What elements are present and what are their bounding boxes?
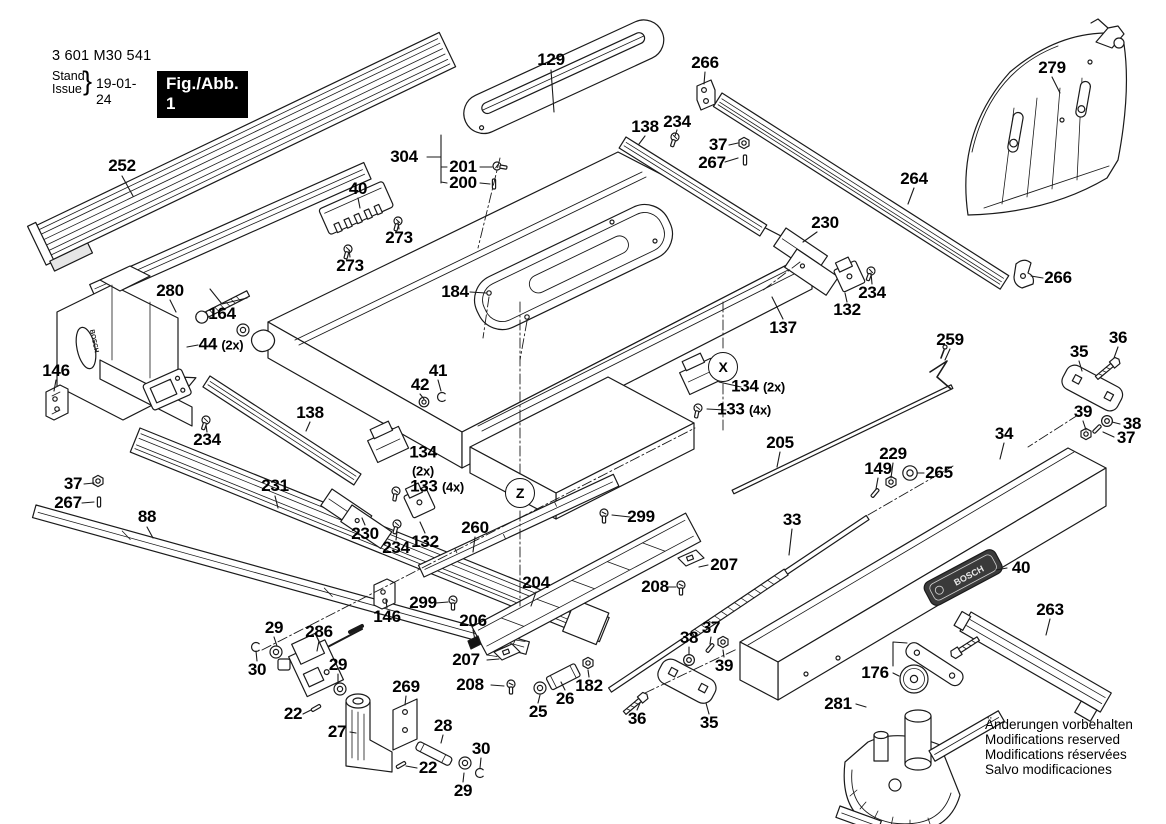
part-callout-27: 27 [328,723,346,741]
part-callout-132: 132 [411,533,438,551]
issue-date: 19-01-24 [96,75,151,107]
part-callout-42: 42 [411,376,429,394]
model-number: 3 601 M30 541 [52,48,151,64]
title-block: 3 601 M30 541 Stand Issue } 19-01-24 Fig… [52,48,151,64]
part-callout-37: 37 [1117,429,1135,447]
part-callout-88: 88 [138,508,156,526]
part-callout-208: 208 [456,676,483,694]
part-callout-22: 22 [284,705,302,723]
part-callout-267: 267 [54,494,81,512]
part-callout-138: 138 [631,118,658,136]
notice-line: Modifications reserved [985,732,1133,747]
part-callout-Z: Z [505,478,535,508]
part-callout-44-2x: 44 (2x) [199,336,244,355]
part-callout-299: 299 [627,508,654,526]
notice-line: Modifications réservées [985,747,1133,762]
part-callout-129: 129 [537,51,564,69]
part-callout-29: 29 [329,656,347,674]
part-callout-207: 207 [452,651,479,669]
part-callout-263: 263 [1036,601,1063,619]
part-callout-260: 260 [461,519,488,537]
parts-diagram-page: BOSCH [0,0,1166,824]
part-callout-204: 204 [522,574,549,592]
part-callout-266: 266 [691,54,718,72]
part-callout-133-4x: 133 (4x) [717,401,771,420]
part-callout-40: 40 [349,180,367,198]
notice-line: Änderungen vorbehalten [985,717,1133,732]
stand-issue-label: Stand Issue [52,70,85,96]
part-callout-304: 304 [390,148,417,166]
part-callout-206: 206 [459,612,486,630]
part-callout-273: 273 [336,257,363,275]
part-callout-231: 231 [261,477,288,495]
part-callout-286: 286 [305,623,332,641]
part-callout-33: 33 [783,511,801,529]
notice-line: Salvo modificaciones [985,762,1133,777]
part-callout-134-2x: 134 (2x) [409,444,436,481]
part-callout-26: 26 [556,690,574,708]
part-callout-176: 176 [861,664,888,682]
part-callout-133-4x: 133 (4x) [410,478,464,497]
part-callout-137: 137 [769,319,796,337]
part-callout-234: 234 [663,113,690,131]
part-callout-252: 252 [108,157,135,175]
part-callout-30: 30 [472,740,490,758]
part-callout-39: 39 [715,657,733,675]
part-callout-279: 279 [1038,59,1065,77]
part-callout-299: 299 [409,594,436,612]
part-callout-30: 30 [248,661,266,679]
part-callout-149: 149 [864,460,891,478]
part-callout-264: 264 [900,170,927,188]
part-callout-37: 37 [709,136,727,154]
part-callout-259: 259 [936,331,963,349]
part-callout-28: 28 [434,717,452,735]
callout-layer: 2521292662791382343726726430420120040273… [0,0,1166,824]
part-callout-230: 230 [351,525,378,543]
part-callout-207: 207 [710,556,737,574]
part-callout-184: 184 [441,283,468,301]
part-callout-234: 234 [858,284,885,302]
part-callout-273: 273 [385,229,412,247]
part-callout-37: 37 [64,475,82,493]
part-callout-234: 234 [193,431,220,449]
part-callout-138: 138 [296,404,323,422]
modification-notices: Änderungen vorbehalten Modifications res… [985,717,1133,777]
part-callout-40: 40 [1012,559,1030,577]
part-callout-29: 29 [454,782,472,800]
part-callout-281: 281 [824,695,851,713]
part-callout-280: 280 [156,282,183,300]
part-callout-205: 205 [766,434,793,452]
part-callout-265: 265 [925,464,952,482]
part-callout-25: 25 [529,703,547,721]
part-callout-35: 35 [1070,343,1088,361]
part-callout-36: 36 [1109,329,1127,347]
part-callout-36: 36 [628,710,646,728]
part-callout-35: 35 [700,714,718,732]
part-callout-269: 269 [392,678,419,696]
part-callout-37: 37 [702,619,720,637]
brace-glyph: } [83,66,92,97]
part-callout-146: 146 [42,362,69,380]
part-callout-134-2x: 134 (2x) [731,378,785,397]
part-callout-208: 208 [641,578,668,596]
part-callout-34: 34 [995,425,1013,443]
part-callout-132: 132 [833,301,860,319]
part-callout-267: 267 [698,154,725,172]
part-callout-146: 146 [373,608,400,626]
part-callout-266: 266 [1044,269,1071,287]
part-callout-39: 39 [1074,403,1092,421]
part-callout-182: 182 [575,677,602,695]
part-callout-41: 41 [429,362,447,380]
part-callout-234: 234 [382,539,409,557]
figure-label: Fig./Abb. 1 [157,71,248,118]
part-callout-230: 230 [811,214,838,232]
part-callout-22: 22 [419,759,437,777]
part-callout-164: 164 [208,305,235,323]
part-callout-38: 38 [680,629,698,647]
part-callout-29: 29 [265,619,283,637]
part-callout-200: 200 [449,174,476,192]
